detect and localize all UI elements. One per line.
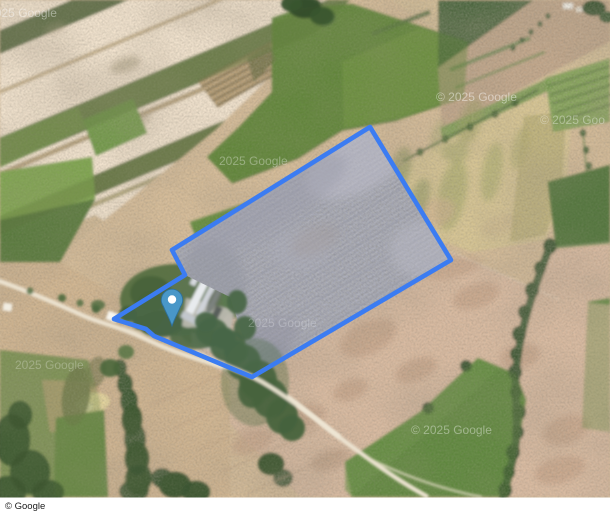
svg-text:© 2025 Goo: © 2025 Goo [540, 113, 605, 127]
svg-text:© 2025 Google: © 2025 Google [411, 423, 492, 437]
svg-text:© 2025 Google: © 2025 Google [0, 6, 57, 20]
svg-text:© Google: © Google [5, 501, 45, 512]
svg-text:© 2025 Google: © 2025 Google [436, 90, 517, 104]
svg-text:2025 Google: 2025 Google [219, 154, 288, 168]
svg-text:2025 Google: 2025 Google [15, 358, 84, 372]
